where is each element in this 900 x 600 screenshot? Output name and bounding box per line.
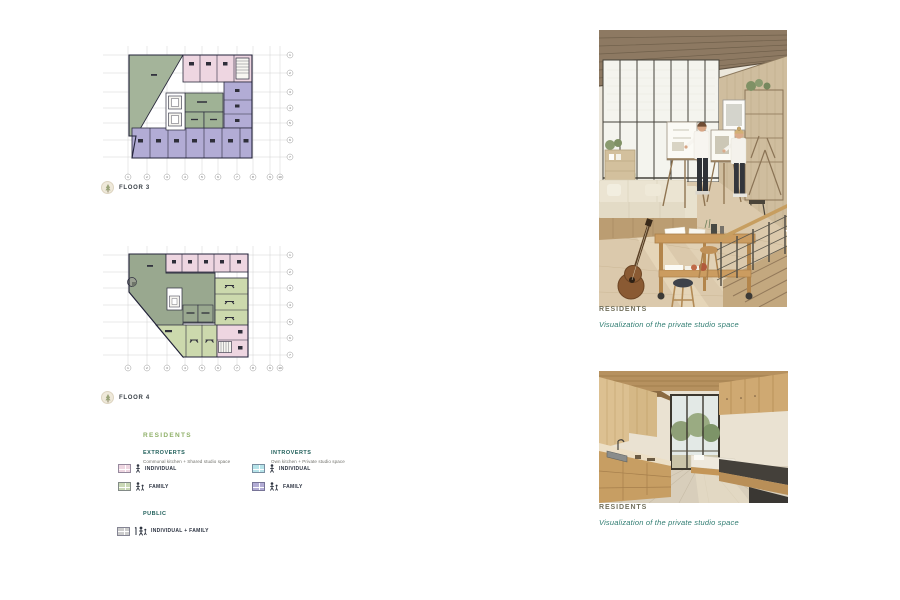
green-studio-rooms — [185, 93, 223, 128]
family-icon — [269, 482, 279, 491]
group-icon — [134, 526, 147, 536]
light-green-room-column — [215, 278, 248, 327]
svg-text:10: 10 — [278, 175, 282, 179]
legend-label: INDIVIDUAL — [145, 466, 177, 472]
legend-label: FAMILY — [149, 484, 169, 490]
legend-extroverts-header: EXTROVERTS — [143, 450, 185, 456]
render-2-title: RESIDENTS — [599, 504, 647, 511]
swatch-pink — [118, 464, 131, 473]
presentation-board: 123456789101234567 FLOOR 3 — [0, 0, 900, 600]
tree-icon — [101, 391, 114, 404]
floor-plan-4-drawing: 123456789101234567 — [95, 240, 305, 410]
person-icon — [135, 464, 141, 473]
render-1-caption: Visualization of the private studio spac… — [599, 320, 739, 329]
floor-plan-3-drawing: 123456789101234567 — [95, 38, 305, 188]
legend-label: FAMILY — [283, 484, 303, 490]
person-icon — [269, 464, 275, 473]
legend-introverts-header: INTROVERTS — [271, 450, 311, 456]
render-photo-apartment — [599, 371, 788, 503]
stair-core — [167, 288, 182, 310]
purple-room-row — [132, 128, 252, 158]
stair-icon — [236, 58, 249, 79]
pink-room-row — [183, 55, 252, 82]
floor-3-label-row: FLOOR 3 — [101, 181, 150, 194]
floor-plan-3: 123456789101234567 — [95, 38, 305, 188]
legend-item-introvert-family: FAMILY — [252, 482, 303, 491]
stair-icon — [219, 342, 232, 353]
render-2-caption: Visualization of the private studio spac… — [599, 518, 739, 527]
legend-item-public: INDIVIDUAL + FAMILY — [117, 526, 209, 536]
apartment-render-drawing — [599, 371, 788, 503]
swatch-cyan — [252, 464, 265, 473]
purple-room-column — [224, 82, 252, 128]
floor-plan-4: 123456789101234567 — [95, 240, 305, 410]
tree-icon — [101, 181, 114, 194]
studio-render-drawing — [599, 30, 787, 307]
legend-item-introvert-individual: INDIVIDUAL — [252, 464, 311, 473]
pink-room-row — [166, 254, 248, 272]
legend-label: INDIVIDUAL + FAMILY — [151, 528, 209, 534]
legend-title: RESIDENTS — [143, 432, 192, 439]
light-green-room-row — [156, 325, 217, 357]
floor-3-label: FLOOR 3 — [119, 185, 150, 191]
render-photo-studio — [599, 30, 787, 307]
pink-room-block — [217, 325, 248, 357]
family-icon — [135, 482, 145, 491]
legend-item-extrovert-family: FAMILY — [118, 482, 169, 491]
render-1-title: RESIDENTS — [599, 306, 647, 313]
swatch-gray — [117, 527, 130, 536]
swatch-green — [118, 482, 131, 491]
swatch-purple — [252, 482, 265, 491]
stair-core — [166, 93, 185, 130]
floor-4-label-row: FLOOR 4 — [101, 391, 150, 404]
svg-text:10: 10 — [278, 366, 282, 370]
legend-public-header: PUBLIC — [143, 511, 166, 517]
legend-label: INDIVIDUAL — [279, 466, 311, 472]
picture-frame — [723, 100, 745, 130]
legend-item-extrovert-individual: INDIVIDUAL — [118, 464, 177, 473]
floor-4-label: FLOOR 4 — [119, 395, 150, 401]
